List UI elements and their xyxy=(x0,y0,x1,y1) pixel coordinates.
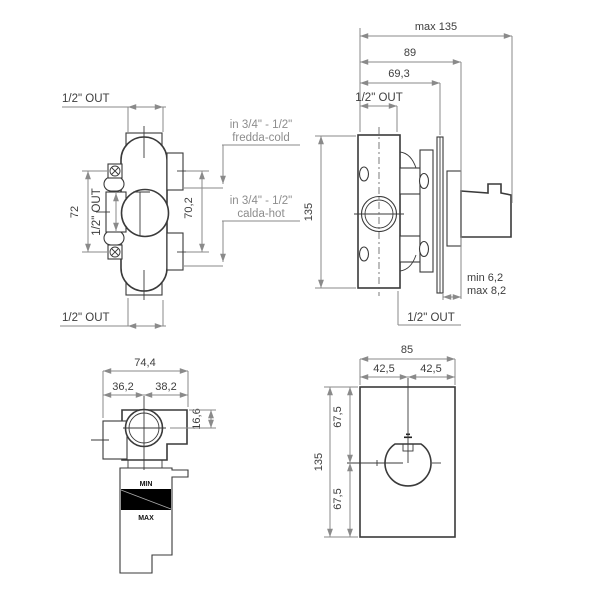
dimension-inlet-distance: 70,2 xyxy=(183,171,209,252)
lower-mounting-tab xyxy=(104,231,124,245)
hot-inlet-spec: in 3/4" - 1/2" xyxy=(230,195,293,207)
dimension-plate-gap: min 6,2 max 8,2 xyxy=(443,272,506,300)
cold-inlet-callout: in 3/4" - 1/2" fredda-cold xyxy=(184,119,300,188)
half-width-left-value: 42,5 xyxy=(373,363,394,375)
width-left-value: 36,2 xyxy=(112,381,133,393)
trim-plate xyxy=(347,378,455,537)
dimension-plate-half-heights: 67,5 67,5 xyxy=(332,387,350,537)
half-width-right-value: 42,5 xyxy=(420,363,441,375)
total-width-value: 74,4 xyxy=(134,357,155,369)
technical-drawing-page: 1/2" OUT 1/2" OUT 72 1/2" OUT 70 xyxy=(0,0,600,600)
upper-column-port xyxy=(420,174,429,189)
hot-inlet-callout: in 3/4" - 1/2" calda-hot xyxy=(184,195,300,266)
half-height-bottom-value: 67,5 xyxy=(332,488,344,509)
hot-inlet-port xyxy=(167,233,183,270)
depth-69-3-value: 69,3 xyxy=(388,68,409,80)
lower-column-port xyxy=(420,242,429,257)
dimension-top-outlet: 1/2" OUT xyxy=(62,93,166,134)
offset-value: 16,6 xyxy=(191,408,203,429)
half-height-top-value: 67,5 xyxy=(332,406,344,427)
dimension-side-top-outlet: 1/2" OUT xyxy=(355,92,403,132)
handle xyxy=(461,184,511,237)
top-view: MIN MAX 74,4 36,2 38,2 16,6 xyxy=(91,357,216,573)
bottom-outlet-label: 1/2" OUT xyxy=(62,312,110,324)
technical-drawing-canvas: 1/2" OUT 1/2" OUT 72 1/2" OUT 70 xyxy=(0,0,600,600)
dimension-plate-half-widths: 42,5 42,5 xyxy=(360,363,455,377)
max-depth-value: max 135 xyxy=(415,21,457,33)
lower-screw xyxy=(108,245,122,259)
callout-side-bottom-outlet: 1/2" OUT xyxy=(398,291,461,325)
plaster-protection-box xyxy=(120,468,188,573)
dimension-split-widths: 36,2 38,2 xyxy=(103,381,188,395)
side-height-value: 135 xyxy=(303,203,315,221)
valve-body-top: MIN MAX xyxy=(91,396,188,573)
valve-body-front xyxy=(96,126,192,300)
plaster-max-label: MAX xyxy=(138,515,154,522)
cold-inlet-port xyxy=(167,153,183,190)
front-view: 1/2" OUT 1/2" OUT 72 1/2" OUT 70 xyxy=(60,93,300,326)
lower-connector xyxy=(400,236,420,262)
inlet-distance-value: 70,2 xyxy=(183,197,195,218)
dimension-bottom-outlet: 1/2" OUT xyxy=(60,298,166,326)
depth-89-value: 89 xyxy=(404,47,416,59)
screw-distance-value: 72 xyxy=(69,206,81,218)
side-view: max 135 89 69,3 1/2" OUT 135 min 6,2 xyxy=(303,21,512,325)
side-outlet-label: 1/2" OUT xyxy=(91,188,103,236)
valve-body-side xyxy=(354,127,511,296)
cold-inlet-name: fredda-cold xyxy=(232,132,290,144)
upper-screw xyxy=(108,164,122,178)
plate-height-value: 135 xyxy=(313,453,325,471)
plate-width-value: 85 xyxy=(401,344,413,356)
upper-connector xyxy=(400,168,420,194)
side-top-outlet-label: 1/2" OUT xyxy=(355,92,403,104)
cold-inlet-spec: in 3/4" - 1/2" xyxy=(230,119,293,131)
side-bottom-outlet-label: 1/2" OUT xyxy=(407,312,455,324)
plaster-min-label: MIN xyxy=(140,481,153,488)
plate-view: 85 42,5 42,5 135 67,5 67,5 xyxy=(313,344,455,537)
top-outlet-label: 1/2" OUT xyxy=(62,93,110,105)
upper-profile-cut xyxy=(400,152,416,168)
dimension-side-height: 135 xyxy=(303,136,356,288)
plate-gap-max-value: max 8,2 xyxy=(467,285,506,297)
handle-escutcheon xyxy=(447,171,461,246)
hot-inlet-name: calda-hot xyxy=(237,208,285,220)
upper-mounting-tab xyxy=(104,177,124,191)
cartridge-front xyxy=(122,190,169,237)
upper-side-port xyxy=(360,167,369,181)
plate-gap-min-value: min 6,2 xyxy=(467,272,503,284)
lower-side-port xyxy=(360,247,369,261)
width-right-value: 38,2 xyxy=(155,381,176,393)
